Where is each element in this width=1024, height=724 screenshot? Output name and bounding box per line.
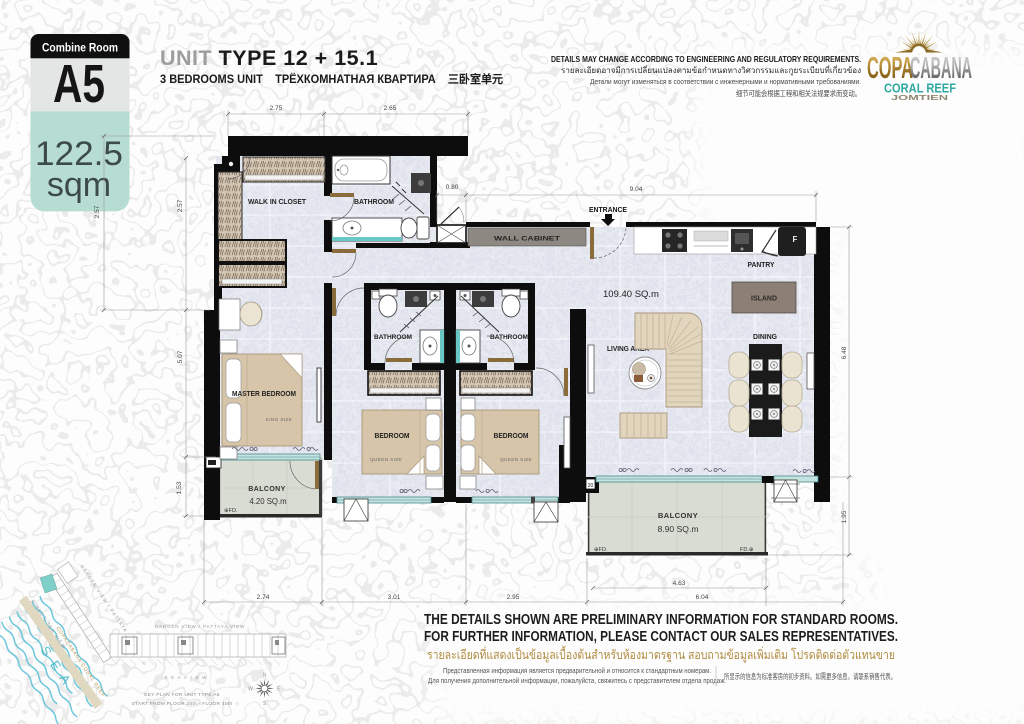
svg-text:1.95: 1.95 (841, 510, 848, 523)
svg-text:QUEEN SIZE: QUEEN SIZE (370, 457, 402, 463)
svg-text:1.53: 1.53 (176, 481, 183, 494)
svg-text:PANTRY: PANTRY (748, 262, 775, 269)
svg-text:WALK IN CLOSET: WALK IN CLOSET (248, 199, 307, 206)
svg-text:BEDROOM: BEDROOM (375, 433, 410, 440)
svg-text:F: F (793, 235, 798, 244)
svg-text:3.01: 3.01 (388, 594, 401, 601)
svg-text:4.20 SQ.m: 4.20 SQ.m (249, 497, 286, 506)
svg-text:⊕FD.: ⊕FD. (594, 547, 608, 553)
svg-text:3 BEDROOMS UNIT ТРЁХКОМНАТН: 3 BEDROOMS UNIT ТРЁХКОМНАТНАЯ КВАРТИРА 三… (160, 72, 503, 86)
svg-text:QUEEN SIZE: QUEEN SIZE (500, 457, 532, 463)
svg-text:KING SIZE: KING SIZE (266, 417, 292, 423)
svg-text:Combine Room: Combine Room (42, 41, 118, 55)
svg-text:BALCONY: BALCONY (658, 511, 698, 520)
svg-text:JOMTIEN: JOMTIEN (891, 93, 948, 102)
svg-text:KEY PLAN FOR UNIT TYPE A5: KEY PLAN FOR UNIT TYPE A5 (144, 692, 220, 698)
svg-text:BATHROOM: BATHROOM (374, 334, 412, 341)
svg-text:UNIT TYPE 12 + 15.1: UNIT TYPE 12 + 15.1 (160, 46, 378, 70)
svg-text:COPA: COPA (867, 50, 913, 85)
svg-text:0.80: 0.80 (446, 184, 459, 191)
svg-text:Детали могут изменяться в соот: Детали могут изменяться в соответствии с… (590, 77, 861, 86)
svg-text:所显示的信息为标准客房的初步资料。如需更多信息，请联系销售代: 所显示的信息为标准客房的初步资料。如需更多信息，请联系销售代表。 (724, 671, 896, 681)
svg-text:5.07: 5.07 (177, 350, 184, 363)
svg-text:W: W (248, 687, 253, 693)
svg-text:20: 20 (588, 483, 594, 489)
svg-text:MASTER BEDROOM: MASTER BEDROOM (232, 391, 296, 398)
svg-text:4.63: 4.63 (673, 580, 686, 587)
svg-text:2.74: 2.74 (257, 594, 270, 601)
svg-text:细节可能会根据工程和相关法规要求而变动。: 细节可能会根据工程和相关法规要求而变动。 (736, 89, 861, 98)
svg-text:⊕FD.: ⊕FD. (224, 508, 238, 514)
svg-text:FOR FURTHER INFORMATION, PLEAS: FOR FURTHER INFORMATION, PLEASE CONTACT … (424, 629, 898, 645)
svg-text:Представленная информация явля: Представленная информация является предв… (443, 667, 711, 675)
svg-text:WALL CABINET: WALL CABINET (494, 236, 561, 243)
svg-text:ISLAND: ISLAND (751, 296, 777, 303)
svg-text:6.48: 6.48 (841, 346, 848, 359)
svg-text:รายละเอียดที่แสดงเป็นข้อมูลเบื: รายละเอียดที่แสดงเป็นข้อมูลเบื้องต้นสำหร… (427, 645, 895, 663)
svg-text:ENTRANCE: ENTRANCE (589, 205, 627, 214)
svg-text:2.95: 2.95 (507, 594, 520, 601)
svg-text:BALCONY: BALCONY (248, 486, 285, 493)
svg-text:DETAILS MAY CHANGE ACCORDING T: DETAILS MAY CHANGE ACCORDING TO ENGINEER… (551, 55, 861, 64)
svg-text:GARDEN VIEW / PATTAYA VIEW: GARDEN VIEW / PATTAYA VIEW (155, 624, 246, 629)
svg-text:Для получения дополнительной и: Для получения дополнительной информации,… (428, 677, 726, 685)
svg-text:START FROM FLOOR 25th - FLOOR: START FROM FLOOR 25th - FLOOR 40th (132, 701, 233, 707)
svg-text:sqm: sqm (47, 166, 111, 204)
svg-text:8.90 SQ.m: 8.90 SQ.m (657, 524, 698, 534)
svg-text:BEDROOM: BEDROOM (494, 433, 529, 440)
svg-text:2.57: 2.57 (177, 199, 184, 212)
svg-text:A5: A5 (53, 54, 105, 114)
svg-text:2.57: 2.57 (94, 205, 101, 218)
svg-text:THE DETAILS SHOWN ARE PRELIMIN: THE DETAILS SHOWN ARE PRELIMINARY INFORM… (424, 612, 898, 628)
svg-text:9.04: 9.04 (630, 186, 643, 193)
svg-text:FD.⊕: FD.⊕ (740, 547, 754, 553)
svg-text:2.65: 2.65 (384, 105, 397, 112)
svg-text:S E A V I E W: S E A V I E W (164, 675, 207, 680)
svg-text:109.40 SQ.m: 109.40 SQ.m (603, 289, 659, 300)
svg-text:BATHROOM: BATHROOM (354, 199, 394, 206)
svg-text:2.75: 2.75 (270, 105, 283, 112)
svg-text:CABANA: CABANA (910, 50, 972, 85)
svg-text:6.04: 6.04 (696, 594, 709, 601)
svg-text:N: N (263, 673, 267, 679)
svg-text:รายละเอียดอาจมีการเปลี่ยนแปลงต: รายละเอียดอาจมีการเปลี่ยนแปลงตามข้อกำหนด… (561, 64, 861, 76)
svg-text:DINING: DINING (753, 334, 778, 341)
